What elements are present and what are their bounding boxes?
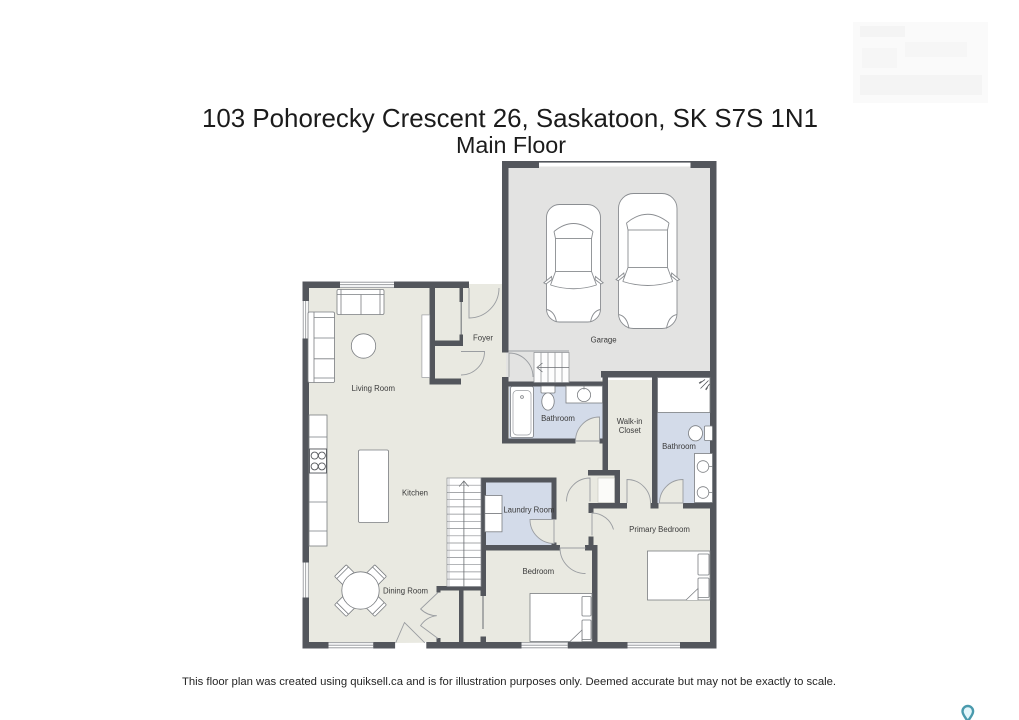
- svg-text:Bedroom: Bedroom: [522, 567, 554, 576]
- svg-text:Main Floor: Main Floor: [456, 132, 566, 158]
- svg-text:Kitchen: Kitchen: [402, 488, 428, 497]
- svg-text:Bathroom: Bathroom: [541, 414, 575, 423]
- svg-text:Foyer: Foyer: [473, 334, 493, 343]
- svg-text:This floor plan was created us: This floor plan was created using quikse…: [182, 676, 836, 688]
- svg-text:Walk-in: Walk-in: [617, 417, 643, 426]
- svg-text:Laundry Room: Laundry Room: [503, 506, 554, 515]
- svg-text:Dining Room: Dining Room: [383, 587, 428, 596]
- svg-text:Primary Bedroom: Primary Bedroom: [629, 525, 690, 534]
- svg-text:Garage: Garage: [591, 335, 617, 344]
- svg-text:Closet: Closet: [619, 426, 642, 435]
- svg-text:Living Room: Living Room: [352, 384, 395, 393]
- svg-text:103 Pohorecky Crescent 26, Sas: 103 Pohorecky Crescent 26, Saskatoon, SK…: [202, 105, 818, 133]
- svg-text:Bathroom: Bathroom: [662, 442, 696, 451]
